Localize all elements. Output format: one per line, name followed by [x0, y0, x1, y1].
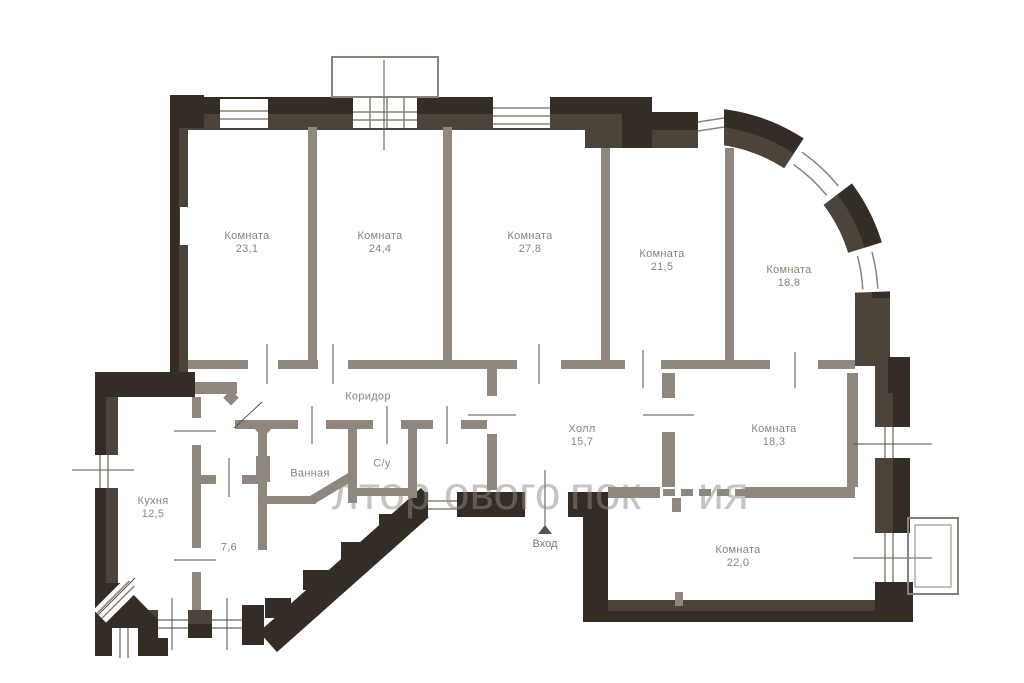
room-area: 7,6: [221, 542, 237, 555]
room-area: 24,4: [357, 243, 402, 256]
floor-plan-drawing: [0, 0, 1024, 683]
room-area: 27,8: [507, 243, 552, 256]
room-label-7-6: 7,6: [221, 542, 237, 555]
room-name: Коридор: [345, 391, 391, 404]
room-name: Комната: [639, 248, 684, 261]
bathroom-label: Ванная: [290, 468, 329, 481]
room-name: Комната: [507, 230, 552, 243]
kitchen-label: Кухня 12,5: [138, 495, 169, 521]
room-area: 21,5: [639, 261, 684, 274]
room-label-24-4: Комната 24,4: [357, 230, 402, 256]
room-name: Комната: [357, 230, 402, 243]
room-area: 22,0: [715, 557, 760, 570]
windows: [90, 97, 914, 658]
room-area: 18,8: [766, 277, 811, 290]
room-label-27-8: Комната 27,8: [507, 230, 552, 256]
room-label-22-0: Комната 22,0: [715, 544, 760, 570]
outer-walls-dark: [95, 95, 913, 656]
watermark-fragment: пок: [570, 466, 641, 520]
room-label-23-1: Комната 23,1: [224, 230, 269, 256]
room-label-21-5: Комната 21,5: [639, 248, 684, 274]
corridor-label: Коридор: [345, 391, 391, 404]
room-name: Комната: [715, 544, 760, 557]
entrance-label: Вход: [533, 538, 558, 550]
floor-plan-page: Комната 23,1 Комната 24,4 Комната 27,8 К…: [0, 0, 1024, 683]
room-area: 23,1: [224, 243, 269, 256]
room-name: Кухня: [138, 495, 169, 508]
room-name: Комната: [224, 230, 269, 243]
room-area: 15,7: [568, 436, 595, 449]
hall-label: Холл 15,7: [568, 423, 595, 449]
entrance-arrow-icon: [538, 525, 552, 534]
watermark-fragment: ия: [698, 466, 749, 520]
watermark-fragment: лтор: [332, 466, 431, 520]
room-area: 18,3: [751, 436, 796, 449]
room-name: Комната: [751, 423, 796, 436]
watermark-fragment: ового: [444, 466, 560, 520]
room-label-18-8: Комната 18,8: [766, 264, 811, 290]
room-area: 12,5: [138, 508, 169, 521]
room-name: Ванная: [290, 468, 329, 481]
room-name: Комната: [766, 264, 811, 277]
room-name: Холл: [568, 423, 595, 436]
room-label-18-3: Комната 18,3: [751, 423, 796, 449]
